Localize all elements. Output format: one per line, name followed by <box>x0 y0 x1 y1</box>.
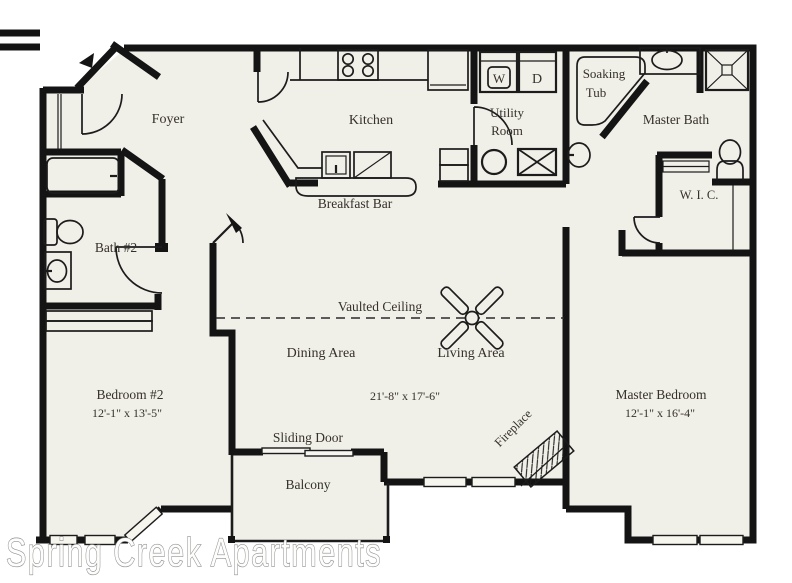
window <box>653 536 697 545</box>
vaulted-ceiling-label: Vaulted Ceiling <box>338 299 423 314</box>
bath2-label: Bath #2 <box>95 240 137 255</box>
soaking-tub-label-1: Soaking <box>583 66 626 81</box>
floor-plan-page: W D <box>0 0 792 583</box>
dining-area-label: Dining Area <box>287 346 357 361</box>
floor-plan: W D <box>0 0 792 583</box>
entry-arrow-icon <box>79 53 94 68</box>
balcony-label: Balcony <box>286 477 331 492</box>
kitchen-label: Kitchen <box>349 113 393 128</box>
dryer-label: D <box>532 72 542 87</box>
foyer-label: Foyer <box>152 112 185 127</box>
master-bedroom-dims-label: 12'-1" x 16'-4" <box>625 406 695 420</box>
utility-room-label-2: Room <box>491 123 523 138</box>
bedroom2-label: Bedroom #2 <box>96 387 163 402</box>
window <box>424 478 466 487</box>
watermark-title: Spring Creek Apartments <box>6 531 382 575</box>
utility-room-label-1: Utility <box>490 105 524 120</box>
bedroom2-dims-label: 12'-1" x 13'-5" <box>92 406 162 420</box>
washer-label: W <box>493 71 506 86</box>
master-bath-label: Master Bath <box>643 112 710 127</box>
window <box>700 536 743 545</box>
window <box>472 478 515 487</box>
wic-label: W. I. C. <box>680 188 719 202</box>
master-bedroom-label: Master Bedroom <box>615 387 707 402</box>
living-area-label: Living Area <box>437 346 505 361</box>
living-dims-label: 21'-8" x 17'-6" <box>370 389 440 403</box>
soaking-tub-label-2: Tub <box>586 85 606 100</box>
breakfast-bar-label: Breakfast Bar <box>318 196 393 211</box>
sliding-door-label: Sliding Door <box>273 430 344 445</box>
